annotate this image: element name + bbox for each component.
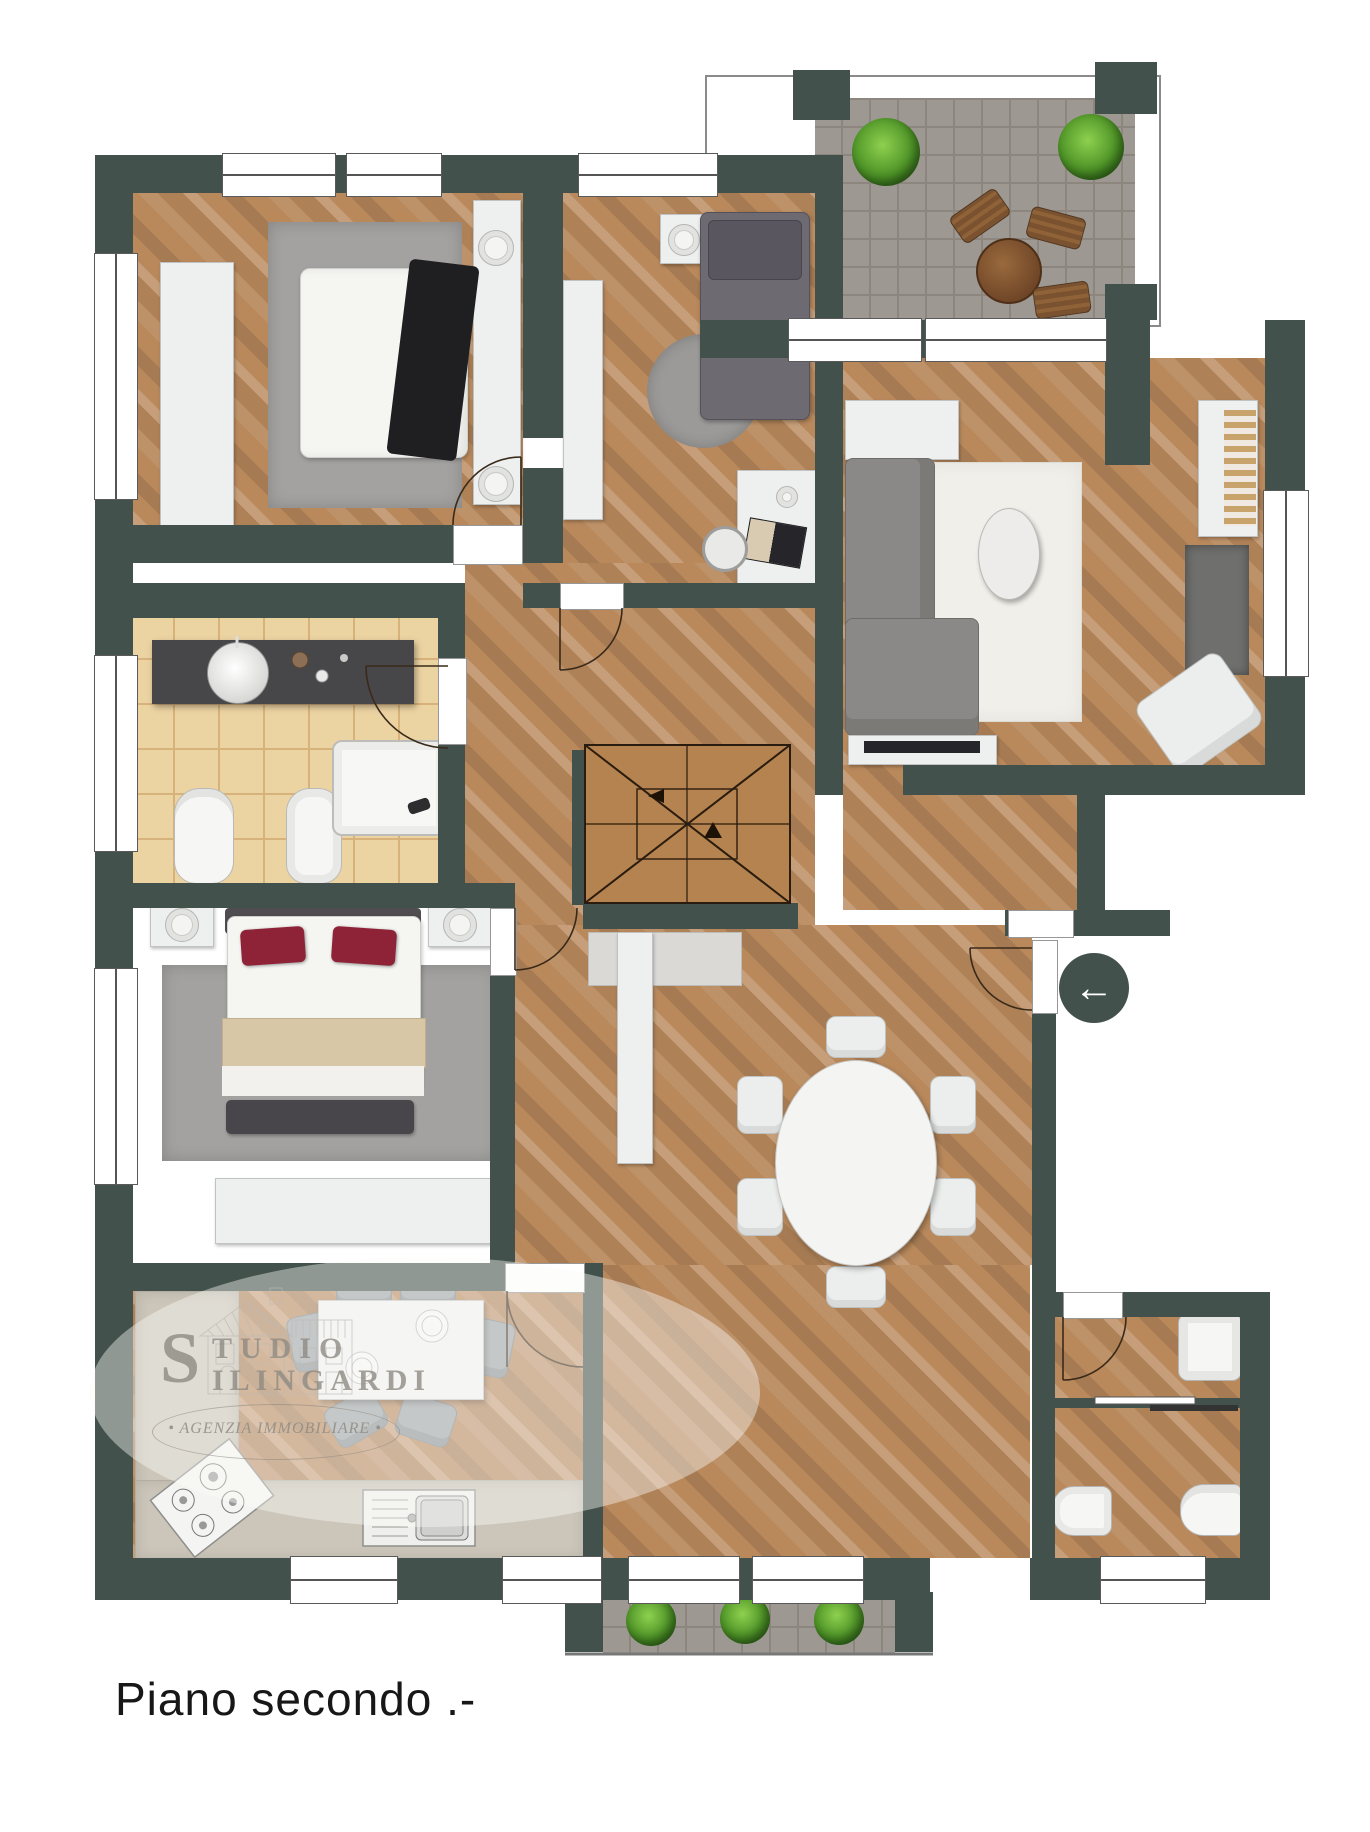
window: [222, 153, 336, 197]
terrace-pillar: [1095, 62, 1157, 114]
window: [94, 253, 138, 500]
window: [94, 968, 138, 1185]
hall-cabinet: [617, 932, 653, 1164]
wall-segment: [523, 583, 560, 608]
wall-segment: [1121, 1292, 1240, 1317]
sideboard: [845, 400, 959, 460]
door-opening: [1032, 940, 1058, 1014]
wall-segment: [1032, 1292, 1063, 1317]
sofa-chaise: [845, 618, 979, 736]
window: [1100, 1556, 1206, 1604]
dining-chair: [930, 1076, 976, 1134]
window: [788, 318, 922, 362]
bedside-lamp: [165, 908, 199, 942]
terrace-plant: [1058, 114, 1124, 180]
coffee-table: [978, 508, 1040, 600]
wall-segment: [622, 583, 843, 608]
bedside-lamp: [478, 466, 514, 502]
door-opening: [1063, 1292, 1123, 1319]
watermark-tagline: • AGENZIA IMMOBILIARE •: [152, 1420, 398, 1438]
floor-plan: S TUDIO ILINGARDI • AGENZIA IMMOBILIARE …: [0, 0, 1370, 1832]
window: [346, 153, 442, 197]
square-sink: [1178, 1313, 1242, 1381]
watermark-line1: TUDIO: [212, 1332, 350, 1366]
wall-segment: [903, 765, 1275, 795]
wall-segment: [523, 193, 563, 438]
window: [94, 655, 138, 852]
wall-segment: [523, 468, 563, 563]
hall-upper-floor: [465, 563, 815, 925]
wall-segment: [1032, 1012, 1056, 1292]
bedside-lamp: [478, 230, 514, 266]
toilet: [1180, 1484, 1242, 1536]
terrace-plant: [852, 118, 920, 186]
dining-chair: [737, 1076, 783, 1134]
shower-tray: [332, 740, 446, 836]
wall-segment: [438, 583, 465, 658]
wall-segment: [895, 1592, 933, 1652]
window: [752, 1556, 864, 1604]
desk-chair: [702, 526, 748, 572]
bed-bench: [226, 1100, 414, 1134]
bedside-lamp: [668, 224, 700, 256]
wall-segment: [1032, 1398, 1240, 1408]
red-pillow: [331, 926, 397, 966]
wall-segment: [583, 903, 798, 929]
cup: [776, 486, 798, 508]
dining-chair: [737, 1178, 783, 1236]
window: [628, 1556, 740, 1604]
wall-segment: [438, 743, 465, 883]
wardrobe: [160, 262, 234, 554]
window: [290, 1556, 398, 1604]
plan-caption: Piano secondo .-: [115, 1672, 476, 1726]
wardrobe: [563, 280, 603, 520]
door-opening: [490, 908, 517, 976]
window: [502, 1556, 602, 1604]
dining-table: [775, 1060, 937, 1266]
wall-segment: [1105, 320, 1150, 465]
bed-fold: [222, 1066, 424, 1096]
window: [1263, 490, 1309, 677]
dining-chair: [826, 1266, 886, 1308]
wall-segment: [490, 974, 515, 1263]
ladder-rack: [1224, 410, 1256, 526]
door-opening: [1008, 910, 1074, 938]
toilet: [174, 788, 234, 884]
door-opening: [438, 658, 467, 745]
wall-segment: [1240, 1292, 1270, 1600]
watermark-line2: ILINGARDI: [212, 1364, 431, 1398]
window: [578, 153, 718, 197]
wall-segment: [95, 583, 465, 618]
wall-segment: [95, 155, 843, 193]
wardrobe: [215, 1178, 509, 1244]
dining-chair: [826, 1016, 886, 1058]
round-sink: [207, 642, 269, 704]
left-arrow-icon: ←: [1074, 966, 1114, 1011]
hall-cabinet: [588, 932, 742, 986]
vanity-counter: [152, 640, 414, 704]
wall-segment: [1032, 1292, 1055, 1558]
dining-chair: [930, 1178, 976, 1236]
red-pillow: [240, 926, 306, 966]
wall-segment: [815, 193, 843, 795]
bidet: [1052, 1486, 1112, 1536]
entry-arrow-badge: ←: [1059, 953, 1129, 1023]
pillow: [708, 220, 802, 280]
terrace-pillar: [793, 70, 850, 120]
wall-segment: [1077, 795, 1105, 910]
door-opening: [453, 525, 523, 565]
bed-runner: [222, 1018, 426, 1068]
tv: [864, 741, 980, 753]
terrace-pillar: [1105, 284, 1157, 320]
watermark-initial: S: [160, 1322, 200, 1394]
window: [925, 318, 1107, 362]
wall-segment: [572, 750, 588, 905]
wall-segment: [95, 883, 515, 908]
door-opening: [560, 583, 624, 610]
bedside-lamp: [443, 908, 477, 942]
